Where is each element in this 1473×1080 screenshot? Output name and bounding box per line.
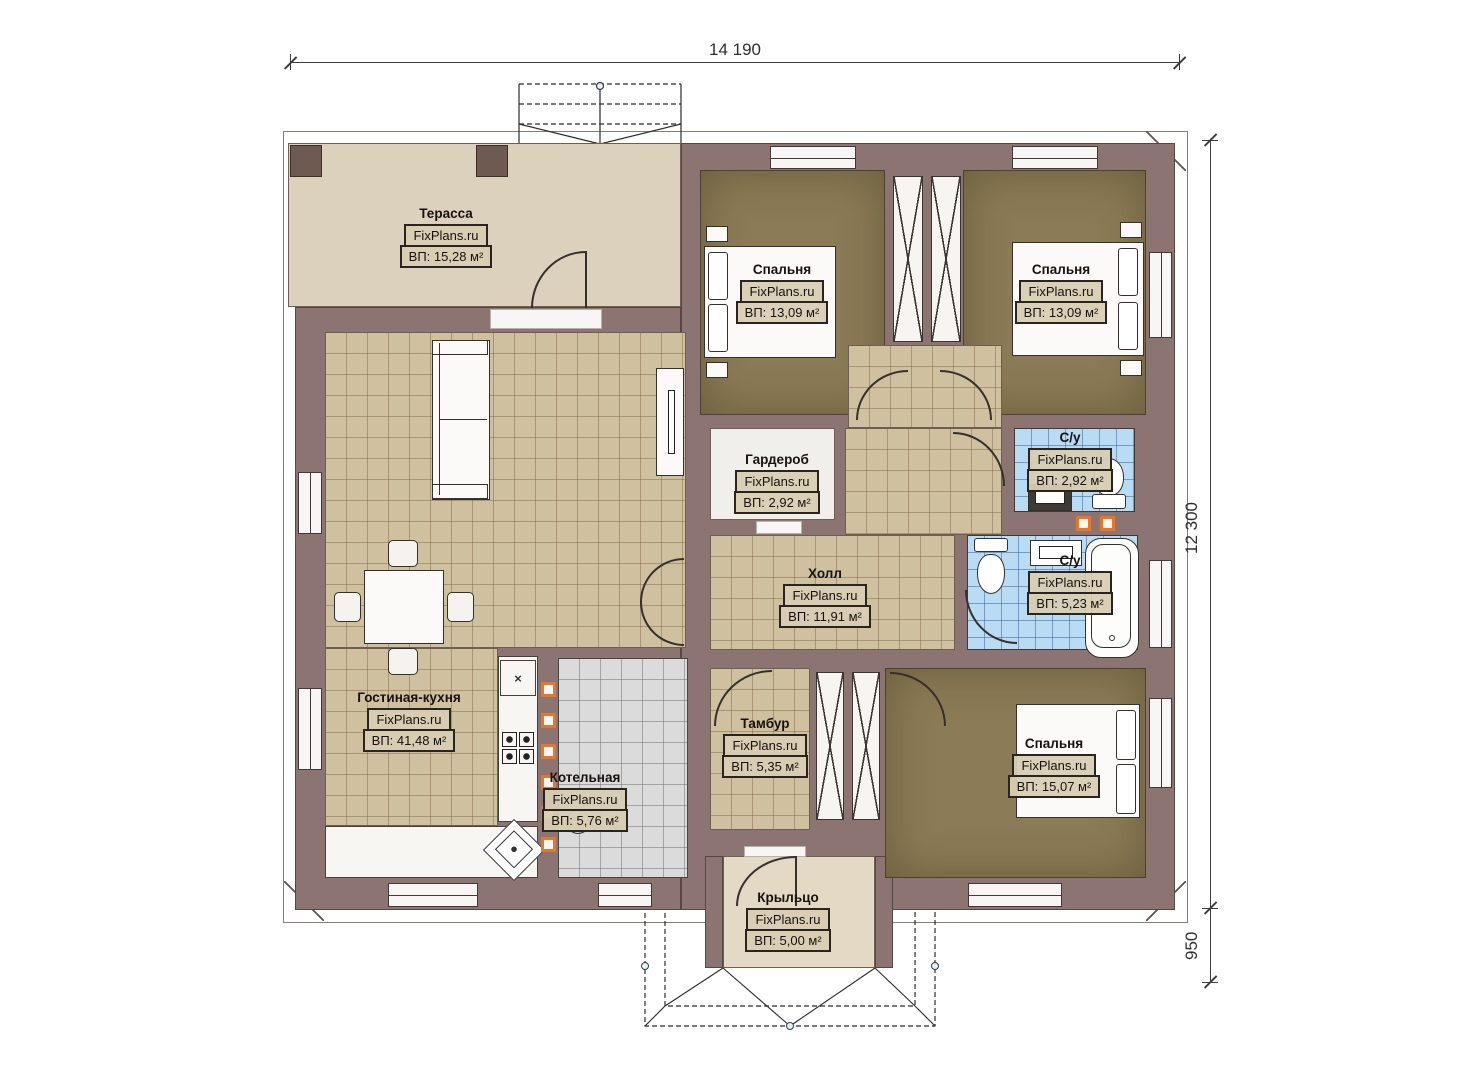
area-box: ВП: 5,00 м² xyxy=(745,929,830,952)
stove-burner-icon xyxy=(519,732,534,747)
room-label-bedroom3: Спальня FixPlans.ru ВП: 15,07 м² xyxy=(989,736,1119,798)
nightstand xyxy=(1120,360,1142,376)
chair xyxy=(334,592,361,622)
sofa xyxy=(432,340,490,500)
room-name: С/у xyxy=(1059,553,1080,568)
room-label-terrace: Терасса FixPlans.ru ВП: 15,28 м² xyxy=(381,206,511,268)
window-left-living2 xyxy=(298,688,322,770)
room-name: Спальня xyxy=(1032,262,1090,277)
flue-block xyxy=(541,744,556,759)
area-box: ВП: 5,23 м² xyxy=(1027,592,1112,615)
terrace-door-threshold xyxy=(490,309,602,329)
brand-box: FixPlans.ru xyxy=(746,908,829,931)
area-box: ВП: 5,35 м² xyxy=(722,755,807,778)
nightstand xyxy=(706,362,728,378)
window-right-bedroom2 xyxy=(1149,252,1172,338)
room-name: Тамбур xyxy=(741,716,790,731)
flue-block xyxy=(541,682,556,697)
wardrobe-closet xyxy=(893,176,923,342)
brand-box: FixPlans.ru xyxy=(1028,448,1111,471)
brand-box: FixPlans.ru xyxy=(783,584,866,607)
sofa-armrest xyxy=(432,484,488,499)
area-box: ВП: 2,92 м² xyxy=(1027,469,1112,492)
floor-plan-canvas: × xyxy=(0,0,1473,1080)
sofa-armrest xyxy=(432,340,488,355)
window-bottom-boiler xyxy=(598,883,652,907)
room-name: Гостиная-кухня xyxy=(357,690,460,705)
chair xyxy=(388,648,418,675)
dining-table xyxy=(364,570,444,644)
bed-pillow xyxy=(1116,764,1136,814)
room-name: Холл xyxy=(808,566,842,581)
window-bottom-kitchen xyxy=(388,883,478,907)
wardrobe-door-threshold xyxy=(756,521,802,534)
terrace-door-leaf xyxy=(585,251,587,308)
room-label-bedroom2: Спальня FixPlans.ru ВП: 13,09 м² xyxy=(996,262,1126,324)
dimension-line-top xyxy=(290,62,1180,63)
brand-box: FixPlans.ru xyxy=(735,470,818,493)
room-label-wardrobe: Гардероб FixPlans.ru ВП: 2,92 м² xyxy=(712,452,842,514)
tv-screen xyxy=(668,390,675,454)
room-name: Терасса xyxy=(419,206,473,221)
flue-block xyxy=(1076,516,1091,531)
room-label-living-kitchen: Гостиная-кухня FixPlans.ru ВП: 41,48 м² xyxy=(344,690,474,752)
dimension-line-right-porch xyxy=(1210,908,1211,982)
sofa-seat-line xyxy=(439,419,487,420)
window-left-living xyxy=(298,472,322,534)
bed-pillow xyxy=(1116,710,1136,760)
nightstand xyxy=(1120,222,1142,238)
brand-box: FixPlans.ru xyxy=(543,788,626,811)
brand-box: FixPlans.ru xyxy=(1012,754,1095,777)
kitchen-vent-icon: × xyxy=(500,660,536,696)
wardrobe-closet xyxy=(852,672,880,820)
area-box: ВП: 2,92 м² xyxy=(734,491,819,514)
stove-burner-icon xyxy=(502,749,517,764)
room-label-boiler: Котельная FixPlans.ru ВП: 5,76 м² xyxy=(520,770,650,832)
sink-basin xyxy=(1035,490,1065,504)
window-right-bedroom3 xyxy=(1149,698,1172,788)
boiler-room-floor xyxy=(558,658,688,878)
terrace-column xyxy=(290,145,322,177)
room-name: С/у xyxy=(1059,430,1080,445)
room-name: Котельная xyxy=(550,770,621,785)
room-name: Крыльцо xyxy=(757,890,818,905)
flue-block xyxy=(1100,516,1115,531)
wardrobe-closet xyxy=(931,176,961,342)
area-box: ВП: 11,91 м² xyxy=(779,605,871,628)
bathtub-drain xyxy=(1109,635,1115,641)
stove-burner-icon xyxy=(519,749,534,764)
window-right-bathroom2 xyxy=(1149,560,1172,648)
toilet-icon xyxy=(977,554,1005,594)
porch-wall-left xyxy=(705,856,723,968)
chair xyxy=(447,592,474,622)
toilet-tank xyxy=(1092,494,1126,509)
terrace-column xyxy=(476,145,508,177)
brand-box: FixPlans.ru xyxy=(1019,280,1102,303)
area-box: ВП: 15,28 м² xyxy=(400,245,493,268)
dimension-width-label: 14 190 xyxy=(660,40,810,60)
window-bottom-bedroom3 xyxy=(968,883,1062,907)
brand-box: FixPlans.ru xyxy=(367,708,450,731)
area-box: ВП: 13,09 м² xyxy=(1015,301,1108,324)
terrace-canopy-roof xyxy=(515,82,685,146)
brand-box: FixPlans.ru xyxy=(1028,571,1111,594)
room-label-hall: Холл FixPlans.ru ВП: 11,91 м² xyxy=(760,566,890,628)
dimension-porch-label: 950 xyxy=(1182,916,1202,976)
flue-block xyxy=(541,713,556,728)
room-name: Гардероб xyxy=(745,452,809,467)
room-label-bedroom1: Спальня FixPlans.ru ВП: 13,09 м² xyxy=(717,262,847,324)
room-label-porch: Крыльцо FixPlans.ru ВП: 5,00 м² xyxy=(723,890,853,952)
brand-box: FixPlans.ru xyxy=(723,734,806,757)
area-box: ВП: 15,07 м² xyxy=(1008,775,1101,798)
window-top-bedroom1 xyxy=(770,146,856,169)
window-top-bedroom2 xyxy=(1012,146,1098,169)
dimension-line-right xyxy=(1210,140,1211,908)
nightstand xyxy=(706,226,728,242)
room-label-bathroom2: С/у FixPlans.ru ВП: 5,23 м² xyxy=(1005,553,1135,615)
room-name: Спальня xyxy=(1025,736,1083,751)
dimension-height-label: 12 300 xyxy=(1182,468,1202,588)
toilet-tank xyxy=(974,538,1008,552)
chair xyxy=(388,540,418,567)
kitchen-sink-basin xyxy=(495,830,533,868)
room-label-bathroom1: С/у FixPlans.ru ВП: 2,92 м² xyxy=(1005,430,1135,492)
room-label-vestibule: Тамбур FixPlans.ru ВП: 5,35 м² xyxy=(700,716,830,778)
vent-glyph: × xyxy=(514,671,522,686)
stove-burner-icon xyxy=(502,732,517,747)
brand-box: FixPlans.ru xyxy=(404,224,487,247)
area-box: ВП: 13,09 м² xyxy=(736,301,829,324)
flue-block xyxy=(541,837,556,852)
area-box: ВП: 41,48 м² xyxy=(363,729,456,752)
room-name: Спальня xyxy=(753,262,811,277)
brand-box: FixPlans.ru xyxy=(740,280,823,303)
area-box: ВП: 5,76 м² xyxy=(542,809,627,832)
